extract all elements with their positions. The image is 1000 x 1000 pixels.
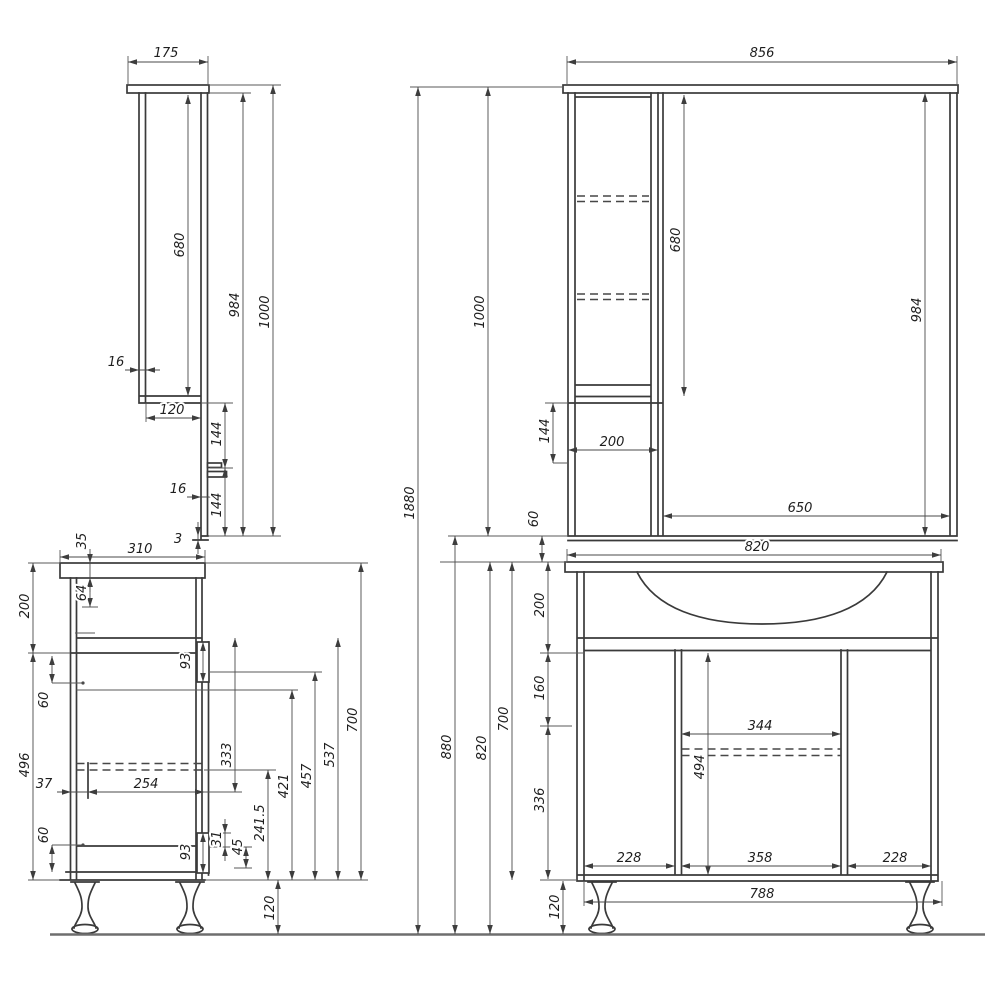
extension-lines <box>28 56 957 906</box>
dim-label-overall-820: 820 <box>475 736 490 761</box>
dim-label-vanity-front-door-height: 494 <box>693 755 708 780</box>
dim-vanity-side-457: 457 <box>300 672 318 880</box>
dim-label-overall-880: 880 <box>440 735 455 760</box>
dim-overall-200: 200 <box>533 562 551 653</box>
dim-overall-700: 700 <box>497 562 515 880</box>
dim-vanity-front-door-left-width: 228 <box>584 851 675 869</box>
dim-vanity-side-offset-60-upper: 60 <box>37 656 55 708</box>
dim-label-mirror-side-ledge-thickness: 16 <box>170 482 187 497</box>
mirror-side-top-board <box>127 85 209 93</box>
furniture-leg <box>906 882 934 934</box>
dim-overall-880: 880 <box>440 536 458 934</box>
dim-label-vanity-side-45: 45 <box>231 839 246 856</box>
dim-overall-160: 160 <box>533 653 551 726</box>
dim-label-vanity-side-31: 31 <box>210 831 225 848</box>
furniture-leg <box>176 882 204 934</box>
dim-label-mirror-front-cabinet-height: 680 <box>669 228 684 253</box>
dim-mirror-side-cabinet-depth: 120 <box>146 403 201 421</box>
dim-label-mirror-side-cabinet-depth: 120 <box>160 403 185 418</box>
dim-mirror-front-width: 856 <box>567 46 957 65</box>
dim-label-overall-700: 700 <box>497 707 512 732</box>
dim-label-vanity-side-241-5: 241.5 <box>253 804 268 841</box>
mirror-cabinet-side-view <box>127 85 227 540</box>
dim-vanity-side-rail-64: 64 <box>75 578 93 607</box>
dim-label-overall-336: 336 <box>533 788 548 813</box>
dim-mirror-front-cabinet-height: 680 <box>669 95 687 396</box>
dim-mirror-front-column-width: 200 <box>568 435 658 453</box>
dim-label-vanity-front-door-right-width: 228 <box>883 851 908 866</box>
dim-label-vanity-side-421: 421 <box>277 774 292 799</box>
dim-vanity-front-base-width: 788 <box>584 887 942 905</box>
mirror-front-body-lines <box>568 93 957 541</box>
dim-label-vanity-front-center-width: 344 <box>748 719 773 734</box>
dim-vanity-front-top-width: 820 <box>567 540 941 558</box>
dim-label-mirror-front-width: 856 <box>750 46 775 61</box>
dim-label-vanity-side-lower-height: 496 <box>18 753 33 778</box>
dim-label-overall-total-height: 1880 <box>403 486 418 519</box>
reference-dot-upper <box>81 681 84 684</box>
dim-label-vanity-side-offset-60-lower: 60 <box>37 827 52 844</box>
dim-label-vanity-front-center-section-width: 358 <box>748 851 773 866</box>
dim-mirror-side-bottom-lip: 3 <box>174 522 201 554</box>
dim-mirror-front-gap-144: 144 <box>538 403 556 463</box>
dim-label-vanity-side-drawer-depth: 254 <box>134 777 159 792</box>
dim-mirror-side-gap-lower: 144 <box>210 468 228 536</box>
vanity-side-shelf-dashed-lines <box>77 764 203 771</box>
dim-label-vanity-side-offset-60-upper: 60 <box>37 692 52 709</box>
dim-vanity-side-lower-height: 496 <box>18 653 36 880</box>
dim-mirror-side-gap-upper: 144 <box>210 403 228 468</box>
dim-vanity-front-center-width: 344 <box>681 719 841 737</box>
mirror-front-shelf-dashed-lines <box>577 196 649 300</box>
vanity-side-body-lines <box>60 578 209 880</box>
sink-basin-curve <box>637 572 887 624</box>
dim-vanity-side-drawer-depth: 254 <box>88 777 204 795</box>
dim-label-mirror-side-height-984: 984 <box>228 293 243 318</box>
vanity-side-detail-ticks <box>75 607 298 690</box>
reference-dot-lower <box>81 843 84 846</box>
dim-overall-336: 336 <box>533 726 551 879</box>
dim-mirror-front-total-height: 1000 <box>473 87 491 536</box>
dim-label-vanity-side-depth: 310 <box>128 542 153 557</box>
dim-vanity-side-421: 421 <box>277 690 295 880</box>
dim-label-vanity-side-333: 333 <box>220 743 235 768</box>
dim-vanity-side-700: 700 <box>346 563 364 880</box>
dim-vanity-front-door-height: 494 <box>693 653 711 875</box>
dim-label-overall-200: 200 <box>533 593 548 618</box>
dim-mirror-side-cabinet-height: 680 <box>173 95 191 396</box>
dim-label-mirror-side-gap-upper: 144 <box>210 422 225 447</box>
dim-label-vanity-side-hinge-93-lower: 93 <box>179 844 194 861</box>
dim-label-mirror-side-bottom-lip: 3 <box>174 532 182 547</box>
dim-vanity-side-offset-60-lower: 60 <box>37 827 55 872</box>
mirror-front-top-board <box>563 85 958 93</box>
vanity-side-top-board <box>60 563 205 578</box>
dim-label-vanity-front-leg-height: 120 <box>548 895 563 920</box>
technical-drawing-page: 1756809841000161201441614438566809841000… <box>0 0 1000 1000</box>
dim-label-mirror-front-total-height: 1000 <box>473 295 488 328</box>
dim-vanity-front-door-right-width: 228 <box>847 851 931 869</box>
vanity-front-top-board <box>565 562 943 572</box>
dim-mirror-front-mirror-width: 650 <box>663 501 950 519</box>
dim-label-mirror-side-cabinet-height: 680 <box>173 233 188 258</box>
furniture-leg <box>71 882 99 934</box>
dim-mirror-side-depth: 175 <box>128 46 208 65</box>
dim-label-vanity-side-457: 457 <box>300 763 315 789</box>
dim-label-vanity-front-base-width: 788 <box>750 887 775 902</box>
dim-vanity-side-31: 31 <box>210 819 228 861</box>
dim-vanity-side-apron-height: 200 <box>18 563 36 653</box>
furniture-leg <box>588 882 616 934</box>
dim-label-mirror-side-depth: 175 <box>154 46 179 61</box>
dim-label-vanity-side-537: 537 <box>323 742 338 768</box>
furniture-legs <box>71 882 934 934</box>
dim-label-vanity-side-leg-height: 120 <box>263 896 278 921</box>
dim-label-vanity-side-hinge-93-upper: 93 <box>179 653 194 670</box>
dim-label-mirror-side-gap-lower: 144 <box>210 493 225 518</box>
dim-vanity-side-45: 45 <box>231 839 249 868</box>
dim-mirror-front-height-984: 984 <box>910 93 928 536</box>
mirror-cabinet-front-view <box>563 85 958 541</box>
vanity-front-shelf-dashed-lines <box>682 749 842 756</box>
dim-vanity-side-241-5: 241.5 <box>253 770 271 880</box>
dim-label-mirror-front-mirror-width: 650 <box>788 501 813 516</box>
dim-mirror-side-panel-thickness: 16 <box>108 355 160 373</box>
dim-vanity-side-leg-height: 120 <box>263 880 281 934</box>
dim-label-mirror-front-column-width: 200 <box>600 435 625 450</box>
dim-label-vanity-side-apron-height: 200 <box>18 594 33 619</box>
dim-overall-820: 820 <box>475 562 493 934</box>
dim-vanity-side-333: 333 <box>220 638 238 792</box>
mirror-side-ledge-upper <box>208 463 222 468</box>
dim-label-overall-160: 160 <box>533 676 548 701</box>
dim-label-mirror-side-panel-thickness: 16 <box>108 355 125 370</box>
dim-label-mirror-front-height-984: 984 <box>910 298 925 323</box>
mirror-side-body-lines <box>139 93 208 540</box>
dim-label-mirror-side-total-height: 1000 <box>258 295 273 328</box>
dimension-annotations: 1756809841000161201441614438566809841000… <box>18 46 957 934</box>
dim-mirror-side-height-984: 984 <box>228 93 246 536</box>
dim-label-vanity-side-back-gap: 37 <box>36 777 53 792</box>
furniture-dimension-drawing: 1756809841000161201441614438566809841000… <box>0 0 1000 1000</box>
dim-vanity-front-center-section-width: 358 <box>681 851 841 869</box>
dim-label-mirror-front-gap-144: 144 <box>538 419 553 444</box>
dim-vanity-side-537: 537 <box>323 638 341 880</box>
dim-label-vanity-side-top-thickness: 35 <box>75 533 90 550</box>
dim-label-vanity-front-door-left-width: 228 <box>617 851 642 866</box>
dim-mirror-side-total-height: 1000 <box>258 85 276 536</box>
dim-label-vanity-side-rail-64: 64 <box>75 585 90 602</box>
dim-vanity-front-leg-height: 120 <box>548 881 566 934</box>
dim-label-mirror-front-gap-to-vanity: 60 <box>527 511 542 528</box>
dim-overall-total-height: 1880 <box>403 87 421 934</box>
dim-label-vanity-side-700: 700 <box>346 708 361 733</box>
dim-label-vanity-front-top-width: 820 <box>745 540 770 555</box>
